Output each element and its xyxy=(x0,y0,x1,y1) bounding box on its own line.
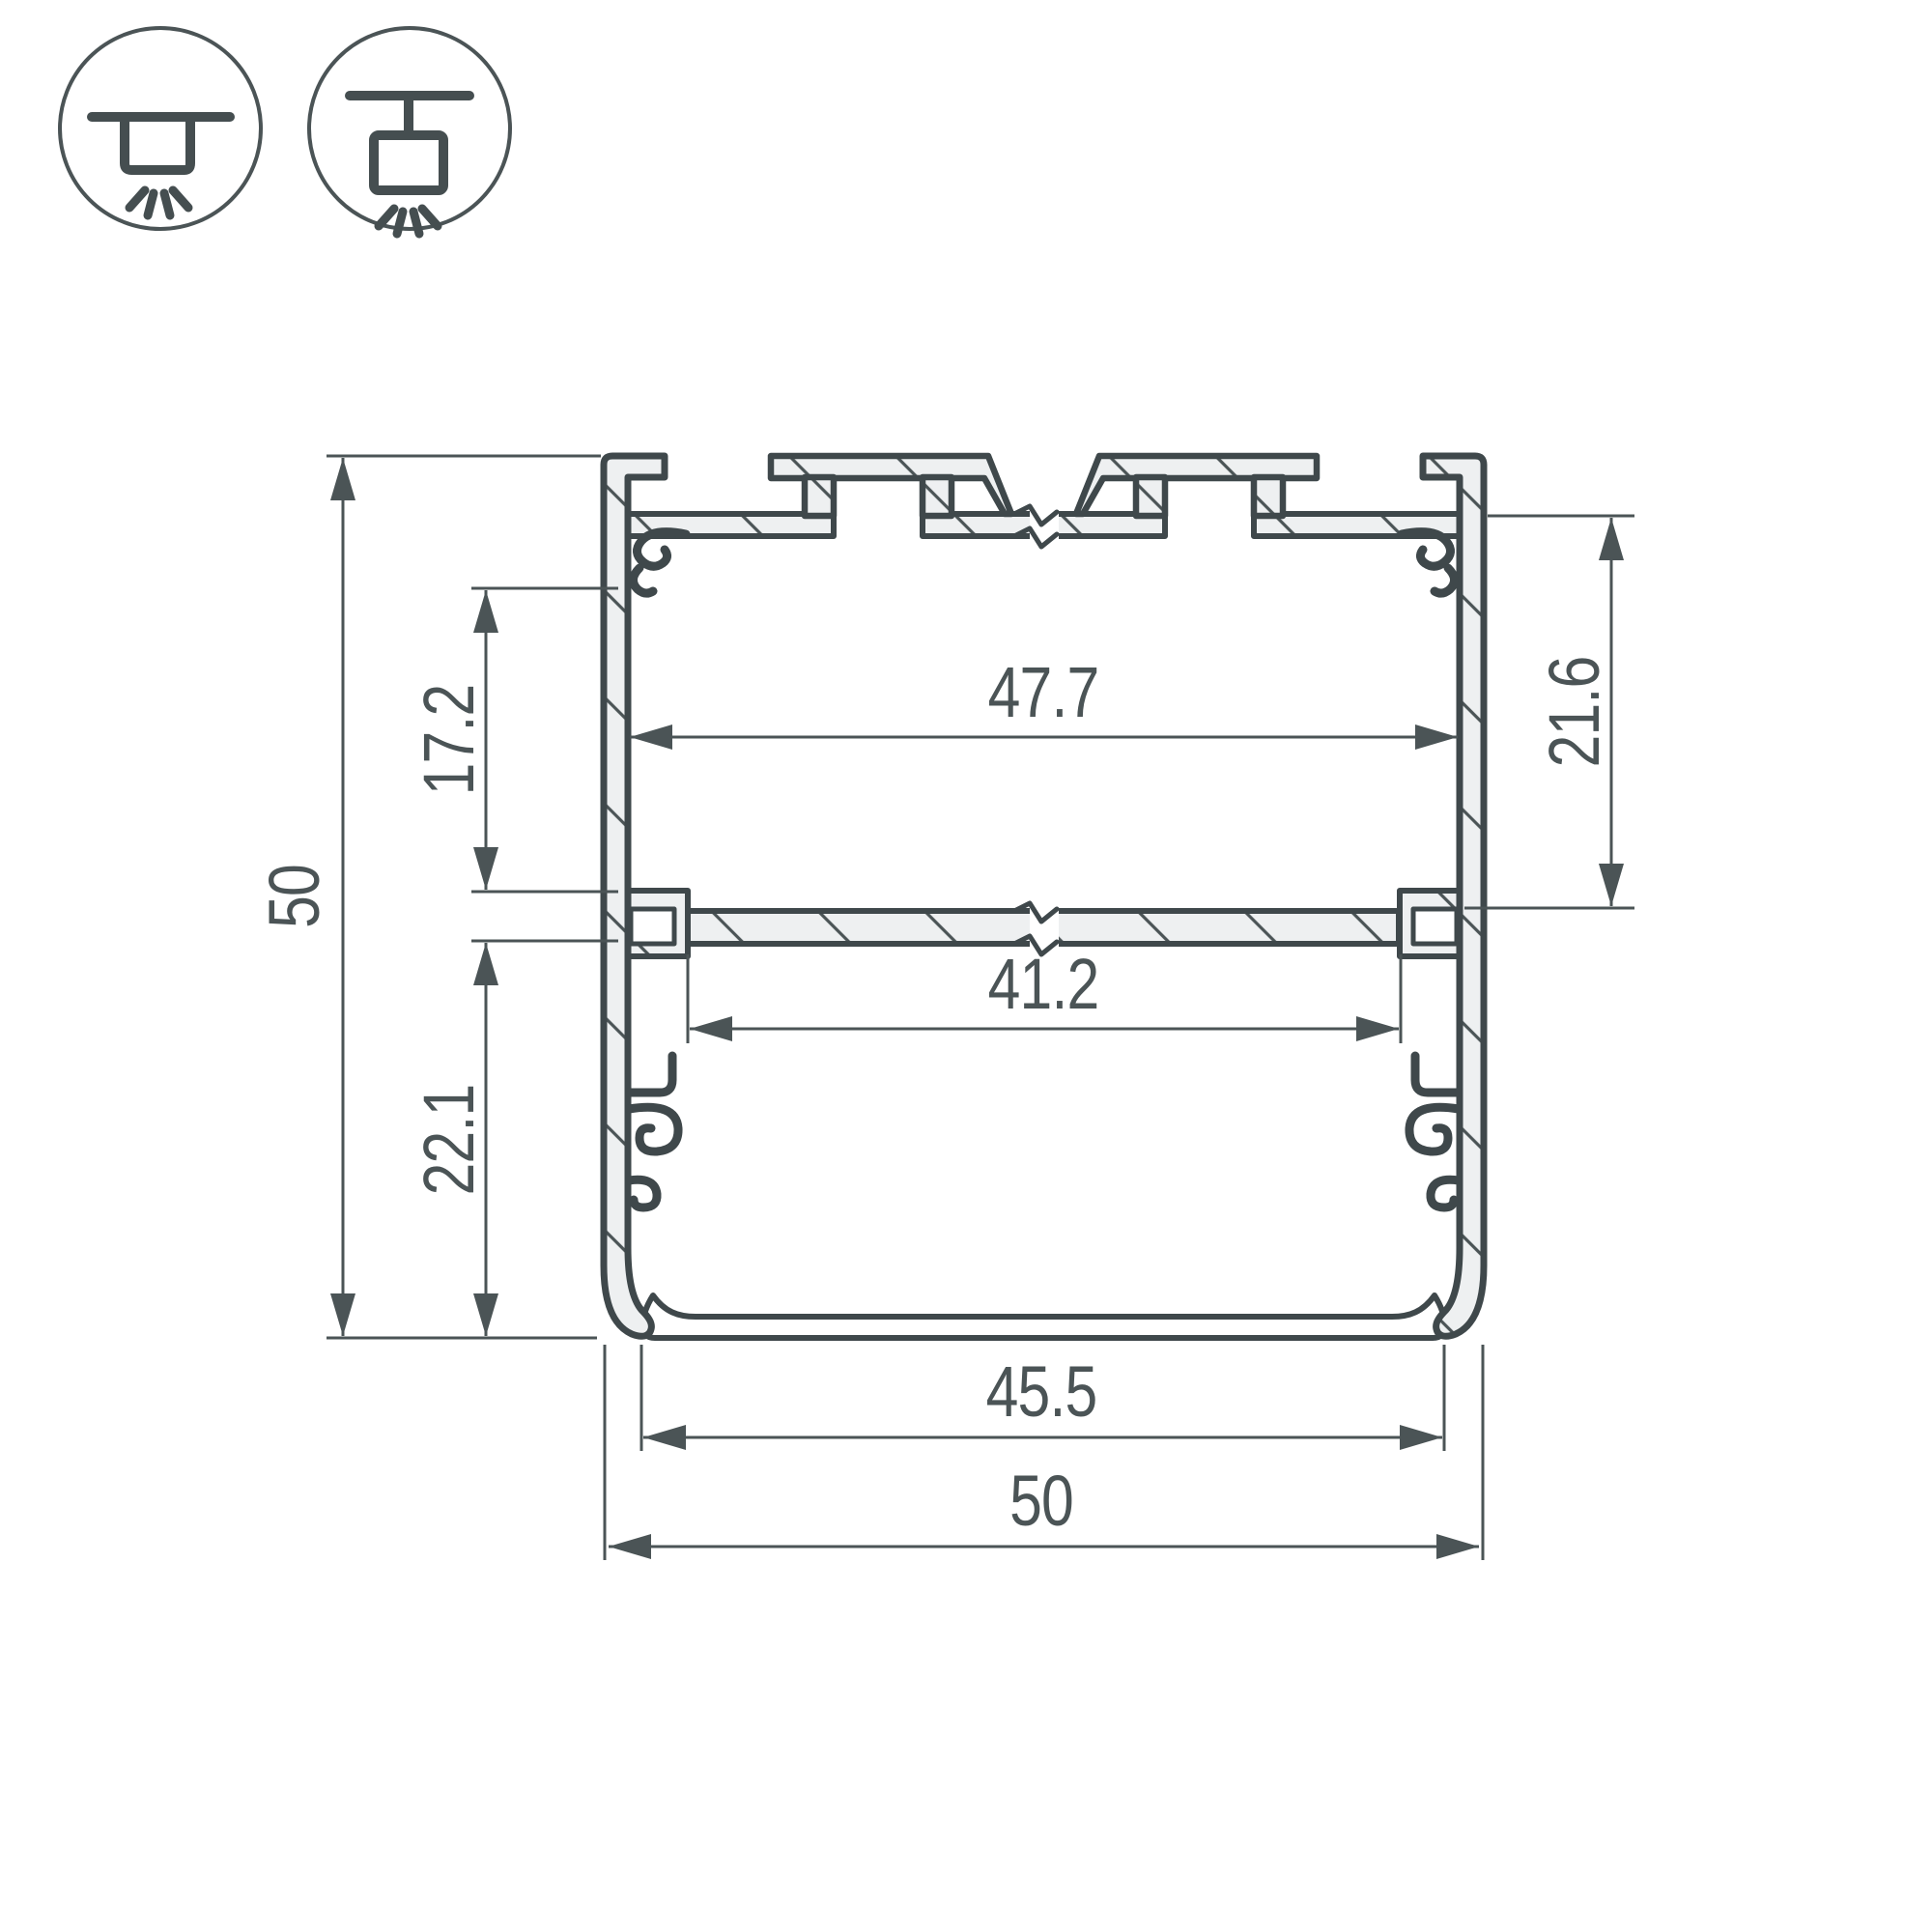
shelf-notch-left xyxy=(631,909,674,944)
dim-label-bottom-opening-width: 45.5 xyxy=(986,1352,1097,1432)
upper-clip-right xyxy=(1402,532,1455,593)
diffuser-plate xyxy=(642,1295,1445,1338)
dim-label-right-inner-height: 21.6 xyxy=(1535,657,1614,768)
profile-cross-section xyxy=(604,456,1484,1338)
surface-mount-icon xyxy=(60,28,261,229)
shelf-notch-right xyxy=(1413,909,1457,944)
dim-label-upper-inner-height: 17.2 xyxy=(410,685,489,796)
dim-top-inner-width: 47.7 xyxy=(630,653,1458,750)
dim-label-mid-inner-width: 41.2 xyxy=(988,945,1099,1024)
lower-clips-left xyxy=(629,1056,678,1207)
dim-right-inner-height: 21.6 xyxy=(1464,516,1634,908)
dim-mid-inner-width: 41.2 xyxy=(688,945,1401,1043)
dim-upper-inner-height: 17.2 xyxy=(410,588,618,892)
dim-label-overall-height: 50 xyxy=(255,865,334,928)
lower-clips-right xyxy=(1409,1056,1459,1207)
dim-label-overall-width: 50 xyxy=(1009,1462,1073,1541)
upper-clip-left xyxy=(633,532,686,593)
mounting-deck-left xyxy=(771,456,1011,516)
drawing-canvas: 50 17.2 22.1 xyxy=(0,0,1932,1932)
pendant-mount-icon xyxy=(309,28,510,234)
dimensions: 50 17.2 22.1 xyxy=(255,456,1634,1560)
dim-bottom-opening-width: 45.5 xyxy=(641,1345,1444,1451)
dim-label-top-inner-width: 47.7 xyxy=(988,653,1099,732)
profile-drawing: 50 17.2 22.1 xyxy=(0,0,1932,1932)
light-rays-icon xyxy=(129,190,188,215)
mounting-deck-right xyxy=(1076,456,1317,516)
dim-lower-inner-height: 22.1 xyxy=(410,941,618,1336)
mount-icons xyxy=(60,28,510,234)
dim-label-lower-inner-height: 22.1 xyxy=(410,1085,489,1196)
